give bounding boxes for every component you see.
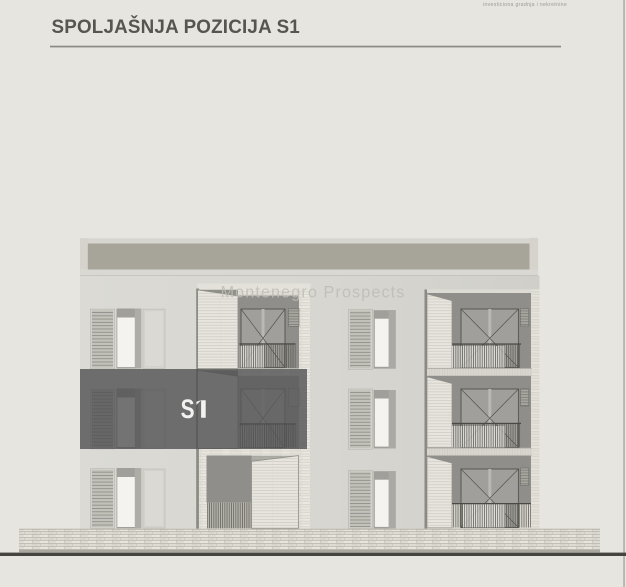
svg-text:SPOLJAŠNJA POZICIJA S1: SPOLJAŠNJA POZICIJA S1 — [52, 16, 301, 38]
svg-text:S: S — [181, 394, 195, 424]
svg-text:investiciona gradnja i nekretn: investiciona gradnja i nekretnine — [483, 2, 567, 8]
svg-text:Montenegro Prospects: Montenegro Prospects — [221, 284, 406, 302]
